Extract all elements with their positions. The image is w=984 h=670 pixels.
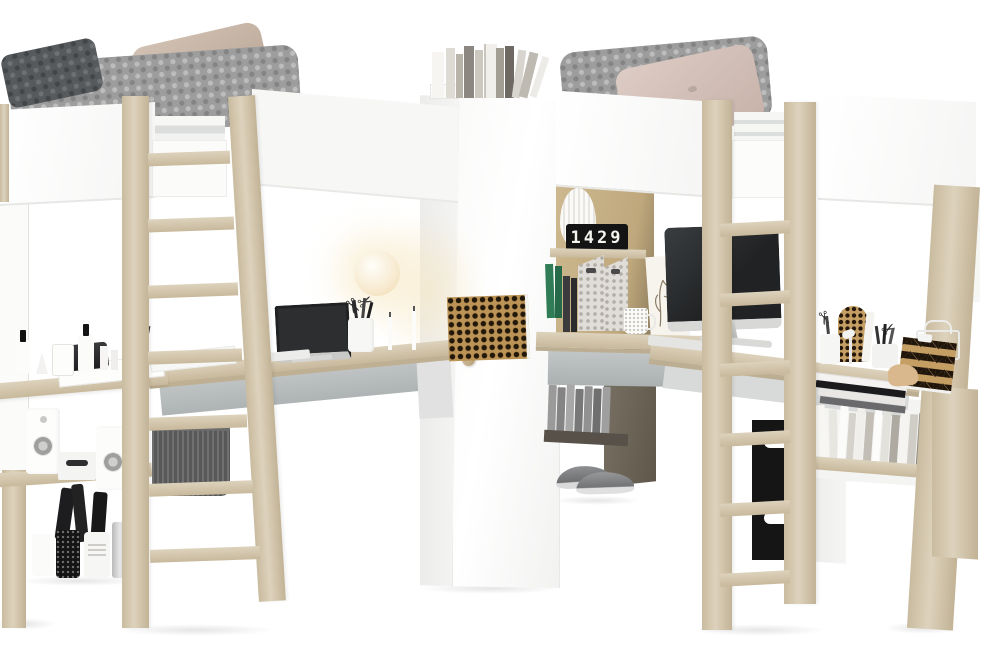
desk-side-panel: [932, 386, 978, 559]
speaker-tweeter: [40, 416, 47, 423]
book-spine: [571, 278, 577, 332]
magazine-file-slot: [586, 268, 596, 273]
stereo-display: [66, 460, 88, 466]
desk-bracket: [417, 359, 454, 419]
storage-jar-black-marble: [56, 530, 80, 578]
shelf-board: [550, 248, 646, 259]
speckled-mug: [624, 308, 648, 334]
bed-leg: [2, 470, 26, 628]
flip-clock: 1429: [566, 224, 628, 251]
pen-cup: [348, 318, 374, 352]
pen-cup: [820, 334, 840, 364]
magazine-file-slot: [611, 269, 620, 274]
cosmetic-tube: [52, 344, 74, 376]
bed-rail-low: [152, 140, 227, 197]
clock-digits: 1429: [571, 228, 624, 248]
ladder-rung: [148, 217, 234, 233]
bed-rail-side: [252, 89, 458, 203]
bottle-pump-cap: [20, 330, 26, 342]
wire-basket-handle: [924, 320, 952, 334]
ladder-rung: [720, 220, 791, 237]
ladder-rung: [149, 414, 247, 430]
bed-rail: [556, 91, 708, 198]
book-spine: [563, 276, 570, 332]
ladder-rung: [149, 480, 253, 497]
ladder-rail: [784, 102, 816, 604]
storage-jar: [32, 534, 54, 576]
bottle-pump-cap: [83, 324, 89, 336]
floor-shadow: [552, 496, 642, 505]
book-spine: [601, 387, 611, 439]
candle-wick: [389, 312, 391, 317]
book-spine: [432, 52, 444, 98]
book-spine: [475, 50, 483, 98]
clipboard-clip: [918, 333, 933, 343]
candlestick: [412, 310, 416, 350]
mug-handle: [646, 314, 656, 330]
ladder-rail: [122, 96, 149, 628]
book-spine: [456, 54, 463, 98]
checkered-pinboard: [447, 295, 530, 362]
sphere-lamp: [354, 250, 400, 296]
speaker-driver: [103, 452, 123, 472]
candle-wick: [413, 306, 415, 311]
product-photo-scene: ✂ ✂ 1429: [0, 0, 984, 670]
jar-label: [88, 544, 106, 558]
candlestick: [388, 316, 392, 350]
spray-bottle: [111, 350, 118, 370]
speaker-driver: [33, 436, 53, 456]
magazine-file: [578, 255, 604, 331]
book-spine: [446, 48, 455, 98]
ladder-rung: [148, 282, 238, 298]
bed-rail-low: [732, 140, 792, 198]
spray-bottle: [100, 346, 108, 370]
cosmetic-bottle: [16, 340, 30, 374]
desk-lamp: [849, 334, 852, 364]
ladder-rung: [150, 546, 260, 563]
cosmetic-cone: [36, 352, 48, 374]
bed-post: [0, 104, 9, 202]
book-spine: [464, 46, 474, 98]
ladder-rung: [720, 570, 791, 587]
book-spine-green: [555, 266, 562, 318]
stereo-unit: [58, 452, 96, 480]
cosmetic-bottle: [78, 334, 94, 372]
book-spine: [496, 48, 504, 98]
